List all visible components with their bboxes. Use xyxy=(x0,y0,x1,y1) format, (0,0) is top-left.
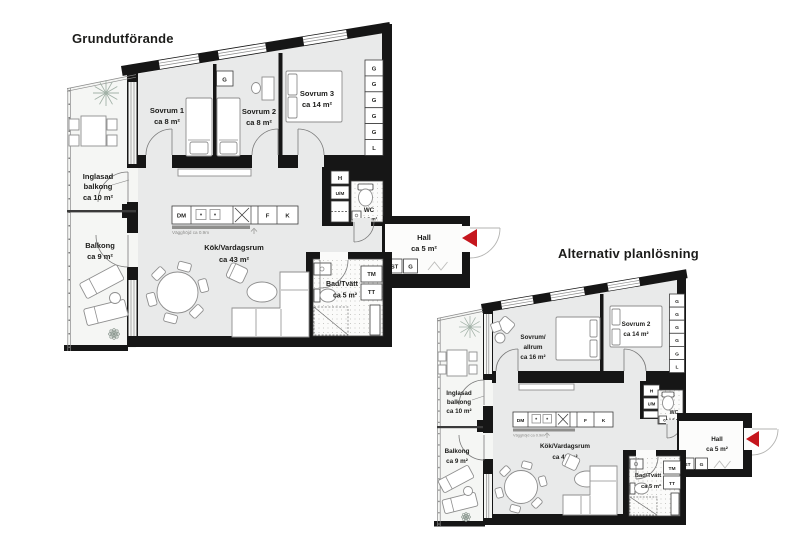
toilet-icon xyxy=(358,184,373,206)
room-label: Balkong xyxy=(85,241,115,250)
room-area: ca 8 m² xyxy=(154,117,180,126)
sink-icon xyxy=(630,459,643,469)
dishwasher-label: DM xyxy=(517,418,525,424)
room-label: Hall xyxy=(417,233,431,242)
room-label: Bad/Tvätt xyxy=(635,473,661,479)
dishwasher-label: DM xyxy=(177,214,186,220)
room-label: Hall xyxy=(711,436,723,443)
hall-wardrobe-label: G xyxy=(700,462,704,468)
wardrobe-label: G xyxy=(675,312,679,318)
wardrobe-column: G G G G G L xyxy=(365,60,383,155)
room-label: balkong xyxy=(447,399,471,406)
wall-height-note: Vägghöjd ca 0.9m xyxy=(513,433,544,438)
freezer-label: F xyxy=(584,418,587,424)
plan-title: Alternativ planlösning xyxy=(558,246,699,261)
bed-single xyxy=(186,98,212,156)
sink-icon xyxy=(314,263,331,275)
room-label: Inglasad xyxy=(83,172,114,181)
wardrobe-label: L xyxy=(676,364,679,370)
room-sovrum-2: Sovrum 2 ca 14 m² xyxy=(610,306,662,347)
wardrobe-label: L xyxy=(372,146,376,152)
room-bad-tvatt: TM TT Bad/Tvätt ca 5 m² xyxy=(306,252,392,344)
wardrobe-label: G xyxy=(372,114,377,120)
sideboard xyxy=(519,384,574,390)
room-area: ca 16 m² xyxy=(520,354,545,361)
dryer-label: TT xyxy=(368,290,376,296)
room-area: ca 14 m² xyxy=(302,100,333,109)
fridge-label: K xyxy=(602,418,606,424)
room-label: balkong xyxy=(84,182,113,191)
room-sovrum-3: Sovrum 3 ca 14 m² xyxy=(286,71,342,122)
floor-plan-sheet: Grundutförande xyxy=(0,0,810,552)
room-area: ca 8 m² xyxy=(246,118,272,127)
side-table xyxy=(110,293,121,304)
coffee-table xyxy=(247,282,277,302)
wall-height-note: Vägghöjd ca 0.9m xyxy=(172,230,209,235)
hall-wardrobe-label: G xyxy=(408,265,413,271)
wardrobe-label: G xyxy=(372,66,377,72)
hall: Hall ca 5 m² ST G xyxy=(677,413,778,477)
wardrobe-label: G xyxy=(675,325,679,331)
room-label: WC xyxy=(364,207,375,214)
floor-plan-grundutforande: Grundutförande xyxy=(64,22,500,351)
fridge-label: K xyxy=(285,214,290,220)
wardrobe-label: G xyxy=(372,98,377,104)
wardrobe-label: G xyxy=(222,78,227,84)
room-label: Kök/Vardagsrum xyxy=(540,443,590,450)
wardrobe-label: G xyxy=(372,130,377,136)
dryer-label: TT xyxy=(669,481,675,487)
side-table xyxy=(464,487,473,496)
wardrobe-label: G xyxy=(675,299,679,305)
room-label: allrum xyxy=(524,344,543,351)
hat-shelf-label: H xyxy=(650,389,654,395)
room-label: Bad/Tvätt xyxy=(326,281,359,288)
room-area: ca 10 m² xyxy=(446,408,471,415)
room-label: Sovrum/ xyxy=(520,334,545,341)
wardrobe-label: G xyxy=(675,351,679,357)
freezer-label: F xyxy=(266,214,270,220)
room-label: Kök/Vardagsrum xyxy=(204,243,264,252)
wardrobe-column: G G G G G L xyxy=(670,294,685,373)
room-label: Sovrum 3 xyxy=(300,89,334,98)
room-label: Sovrum 1 xyxy=(150,106,184,115)
room-area: ca 9 m² xyxy=(446,458,468,465)
hall: Hall ca 5 m² ST G xyxy=(383,216,500,288)
side-table xyxy=(495,333,505,343)
room-area: ca 5 m² xyxy=(706,446,728,453)
room-area: ca 14 m² xyxy=(623,331,648,338)
washing-machine-label: TM xyxy=(367,272,376,278)
toilet-icon xyxy=(662,392,674,410)
bed-single xyxy=(217,98,240,156)
room-label: Sovrum 2 xyxy=(622,321,651,328)
room-label: Balkong xyxy=(445,448,470,455)
room-area: ca 10 m² xyxy=(83,193,114,202)
room-label: Inglasad xyxy=(446,390,472,397)
sideboard xyxy=(178,169,251,176)
wardrobe-label: G xyxy=(675,338,679,344)
um-label: U/M xyxy=(336,191,345,197)
room-bad-tvatt: TM TT Bad/Tvätt ca 5 m² xyxy=(623,450,686,522)
room-area: ca 9 m² xyxy=(87,252,113,261)
room-label: Sovrum 2 xyxy=(242,107,276,116)
bed-double xyxy=(556,317,600,360)
room-area: ca 5 m² xyxy=(333,293,358,300)
hat-shelf-label: H xyxy=(338,176,342,182)
room-area: ca 5 m² xyxy=(641,483,661,490)
plan-title: Grundutförande xyxy=(72,31,174,46)
washing-machine-label: TM xyxy=(668,466,675,472)
room-area: ca 5 m² xyxy=(411,244,437,253)
floor-plan-alternativ: Alternativ planlösning xyxy=(434,246,778,527)
um-label: U/M xyxy=(648,402,656,407)
wardrobe-label: G xyxy=(372,82,377,88)
